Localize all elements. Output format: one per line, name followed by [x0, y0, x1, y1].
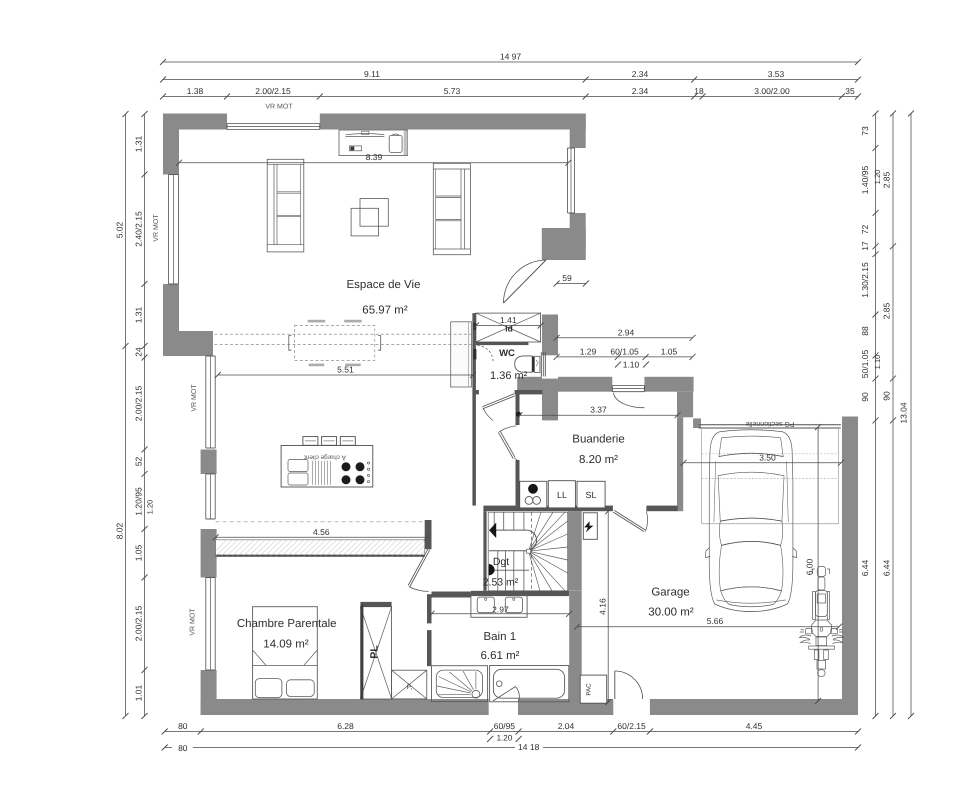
svg-text:6.44: 6.44 — [860, 559, 870, 576]
svg-text:VR MOT: VR MOT — [190, 608, 197, 636]
svg-text:Buanderie: Buanderie — [572, 434, 624, 446]
svg-text:50/1.05: 50/1.05 — [860, 350, 870, 379]
svg-text:59: 59 — [562, 273, 572, 283]
svg-text:2.00/2.15: 2.00/2.15 — [134, 386, 144, 422]
svg-text:13.04: 13.04 — [899, 402, 909, 424]
svg-text:73: 73 — [860, 126, 870, 136]
svg-text:6.28: 6.28 — [337, 721, 354, 731]
svg-text:1.10: 1.10 — [623, 360, 640, 370]
svg-text:8.02: 8.02 — [115, 522, 125, 539]
svg-text:PAC: PAC — [586, 683, 593, 696]
svg-text:14 97: 14 97 — [500, 52, 522, 62]
svg-text:4.16: 4.16 — [598, 598, 608, 615]
svg-text:VR MOT: VR MOT — [191, 384, 198, 412]
svg-text:2.34: 2.34 — [632, 86, 649, 96]
svg-text:SL: SL — [585, 490, 596, 500]
svg-text:PL: PL — [369, 645, 381, 659]
svg-text:1.31: 1.31 — [134, 135, 144, 152]
svg-text:5.02: 5.02 — [115, 221, 125, 238]
svg-text:17: 17 — [860, 241, 870, 251]
svg-text:LL: LL — [557, 490, 567, 500]
svg-text:8.20 m²: 8.20 m² — [579, 454, 618, 466]
svg-text:2.40/2.15: 2.40/2.15 — [134, 211, 144, 247]
svg-text:4.56: 4.56 — [313, 527, 330, 537]
svg-text:1.36 m²: 1.36 m² — [490, 370, 528, 382]
svg-text:14.09 m²: 14.09 m² — [263, 639, 309, 651]
svg-text:2.00/2.15: 2.00/2.15 — [255, 86, 291, 96]
svg-text:2.00/2.15: 2.00/2.15 — [134, 606, 144, 642]
svg-text:P,: P, — [407, 684, 412, 691]
svg-text:30.00 m²: 30.00 m² — [648, 607, 694, 619]
svg-text:1.29: 1.29 — [580, 346, 597, 356]
svg-text:6.61 m²: 6.61 m² — [481, 650, 520, 662]
svg-text:24: 24 — [134, 347, 144, 357]
svg-text:90: 90 — [860, 392, 870, 402]
svg-text:1.20: 1.20 — [146, 500, 155, 515]
svg-text:Id: Id — [505, 324, 513, 334]
svg-text:2.94: 2.94 — [618, 327, 635, 337]
svg-text:65.97 m²: 65.97 m² — [362, 305, 408, 317]
svg-text:90: 90 — [882, 391, 892, 401]
svg-text:60/2.15: 60/2.15 — [617, 721, 646, 731]
svg-text:Espace de Vie: Espace de Vie — [347, 279, 421, 291]
svg-text:WC: WC — [499, 348, 515, 359]
svg-text:2.34: 2.34 — [632, 69, 649, 79]
svg-text:3.50: 3.50 — [759, 452, 776, 462]
svg-text:80: 80 — [178, 743, 188, 753]
svg-text:1.10: 1.10 — [873, 355, 882, 370]
svg-text:1.31: 1.31 — [134, 306, 144, 323]
svg-text:4.45: 4.45 — [746, 721, 763, 731]
svg-text:88: 88 — [860, 326, 870, 336]
svg-text:35: 35 — [845, 86, 855, 96]
svg-text:Dgt: Dgt — [493, 556, 509, 568]
svg-text:60/1.05: 60/1.05 — [610, 346, 639, 356]
svg-text:2.04: 2.04 — [558, 721, 575, 731]
svg-text:PG sectionnelle: PG sectionnelle — [745, 420, 794, 428]
svg-text:1.38: 1.38 — [187, 86, 204, 96]
svg-text:Chambre Parentale: Chambre Parentale — [237, 618, 337, 630]
svg-text:2.85: 2.85 — [882, 171, 892, 188]
svg-text:5.73: 5.73 — [444, 86, 461, 96]
svg-text:5.51: 5.51 — [337, 365, 354, 375]
svg-text:2.97: 2.97 — [492, 605, 509, 615]
svg-text:8.39: 8.39 — [366, 152, 383, 162]
svg-text:À charge client: À charge client — [304, 454, 346, 462]
svg-text:18: 18 — [694, 86, 704, 96]
svg-text:3.53: 3.53 — [768, 69, 785, 79]
svg-text:1.20/95: 1.20/95 — [134, 487, 144, 516]
svg-text:2.85: 2.85 — [882, 302, 892, 319]
svg-text:0: 0 — [820, 627, 824, 634]
svg-text:1.30/2.15: 1.30/2.15 — [860, 262, 870, 298]
svg-text:80: 80 — [178, 721, 188, 731]
svg-text:Garage: Garage — [651, 587, 689, 599]
svg-text:52: 52 — [134, 457, 144, 467]
svg-text:1.05: 1.05 — [134, 544, 144, 561]
svg-text:60/95: 60/95 — [494, 721, 516, 731]
svg-text:1.05: 1.05 — [661, 346, 678, 356]
svg-text:1.01: 1.01 — [134, 684, 144, 701]
svg-text:6.44: 6.44 — [882, 559, 892, 576]
svg-text:3.37: 3.37 — [590, 405, 607, 415]
svg-text:1.40/95: 1.40/95 — [860, 166, 870, 195]
svg-text:6.00: 6.00 — [805, 558, 815, 575]
svg-text:1.20: 1.20 — [497, 734, 513, 743]
svg-text:3.00/2.00: 3.00/2.00 — [754, 86, 790, 96]
svg-text:5.66: 5.66 — [707, 616, 724, 626]
svg-text:VR MOT: VR MOT — [265, 104, 293, 111]
svg-text:Bain 1: Bain 1 — [483, 631, 516, 643]
svg-text:72: 72 — [860, 225, 870, 235]
svg-text:9.11: 9.11 — [364, 69, 380, 79]
svg-text:VR MOT: VR MOT — [153, 214, 160, 242]
svg-text:2.53 m²: 2.53 m² — [483, 577, 519, 589]
svg-text:14 18: 14 18 — [518, 742, 540, 752]
